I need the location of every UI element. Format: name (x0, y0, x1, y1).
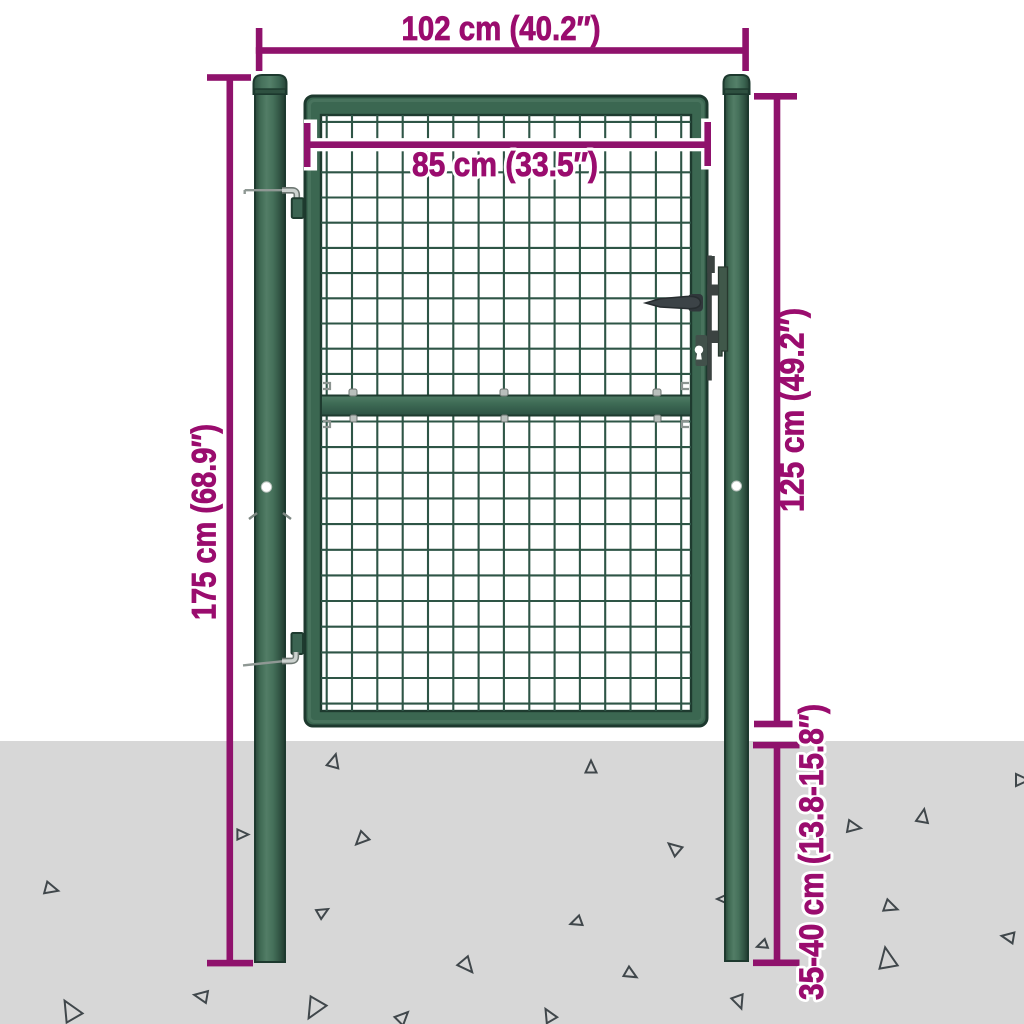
svg-text:35-40 cm (13.8-15.8″): 35-40 cm (13.8-15.8″) (793, 704, 831, 1000)
svg-text:102 cm (40.2″): 102 cm (40.2″) (402, 10, 601, 48)
svg-text:175 cm (68.9″): 175 cm (68.9″) (186, 424, 224, 620)
svg-text:85 cm (33.5″): 85 cm (33.5″) (412, 146, 598, 184)
svg-text:125 cm (49.2″): 125 cm (49.2″) (774, 308, 812, 512)
